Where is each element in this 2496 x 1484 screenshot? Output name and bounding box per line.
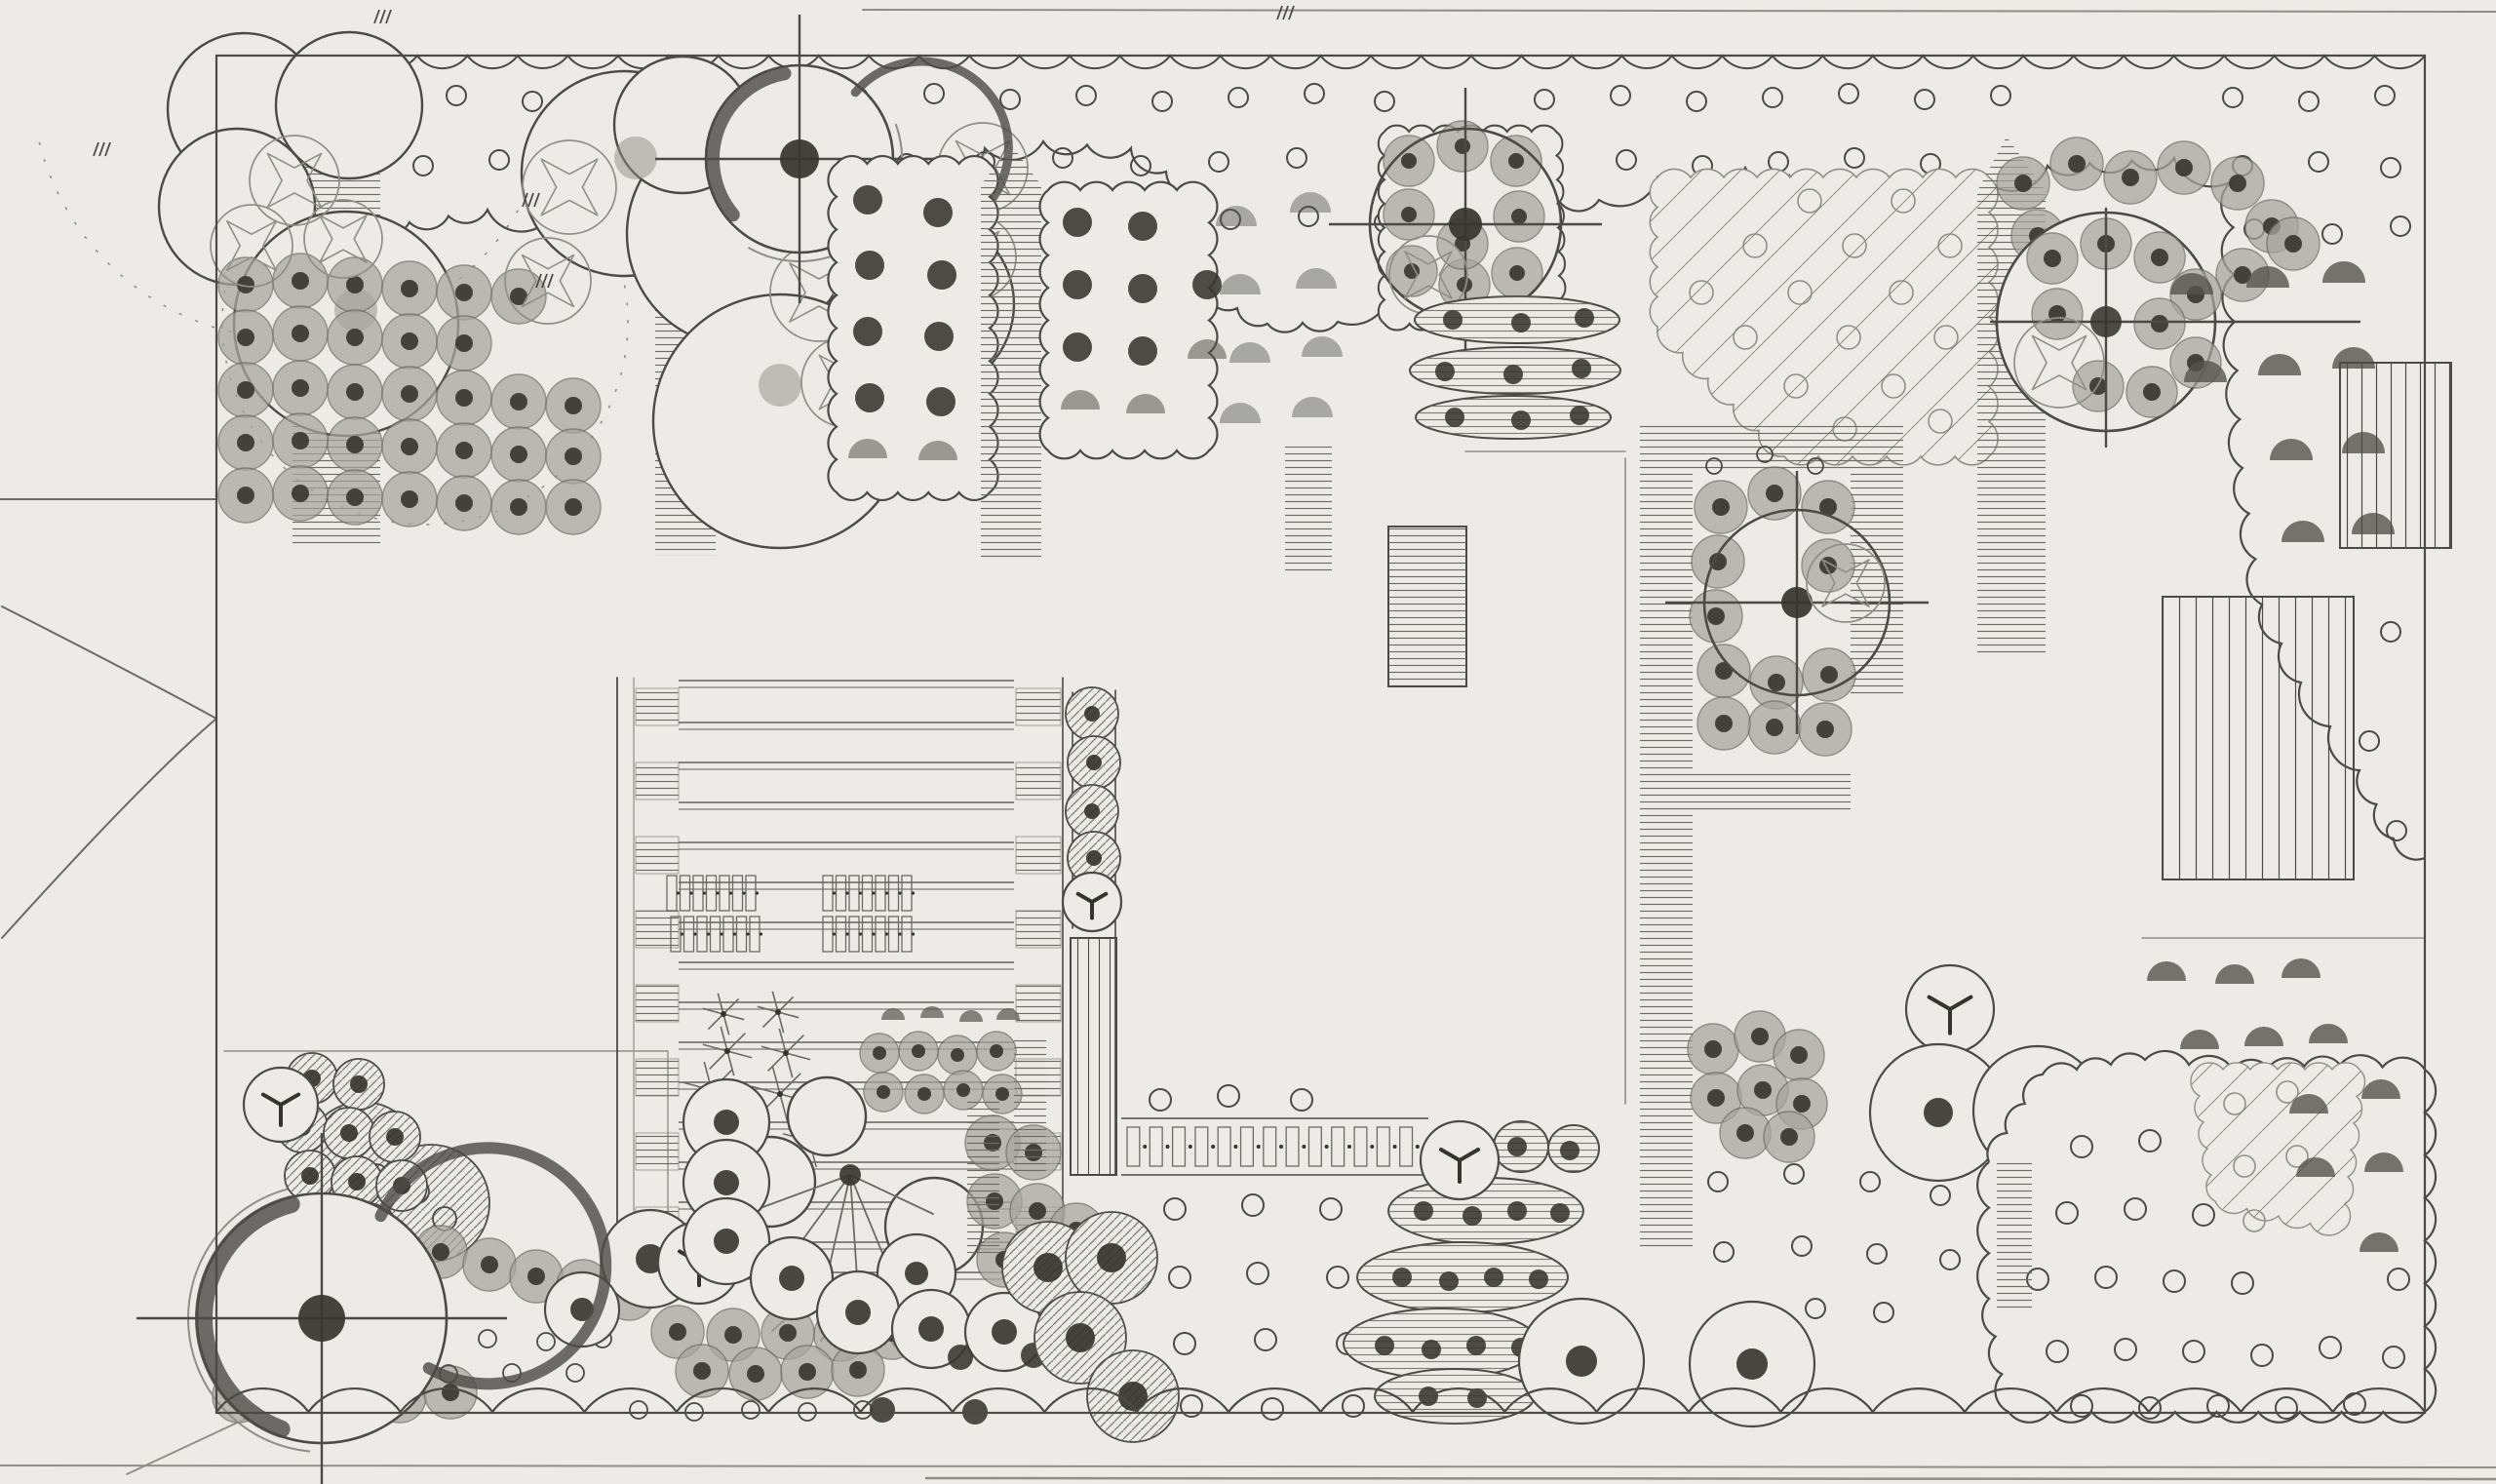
paving-47 xyxy=(2163,597,2354,879)
scanned-garden-plan-page xyxy=(0,0,2496,1484)
hedge-51 xyxy=(1640,470,1693,1250)
landscape-planting-plan-drawing xyxy=(0,0,2496,1484)
birdfoot-86 xyxy=(244,1068,318,1142)
hedge-52 xyxy=(1693,770,1851,813)
hedge-50 xyxy=(1851,470,1903,694)
birdfoot-103 xyxy=(1906,965,1994,1053)
hedge-27 xyxy=(1285,447,1332,571)
hedge-28 xyxy=(1388,527,1466,686)
paving-81 xyxy=(1071,938,1116,1175)
paving-46 xyxy=(2340,363,2451,548)
dots-43 xyxy=(2090,306,2122,337)
hedge-111 xyxy=(1997,1160,2032,1308)
birdfoot-100 xyxy=(1421,1121,1499,1199)
birdfoot-80 xyxy=(1063,873,1121,931)
hedge-22 xyxy=(981,144,1041,558)
hedge-95 xyxy=(1014,1036,1046,1175)
hedge-49 xyxy=(1640,421,1903,470)
hedge-94 xyxy=(967,1099,999,1253)
line-2 xyxy=(926,1478,2496,1479)
